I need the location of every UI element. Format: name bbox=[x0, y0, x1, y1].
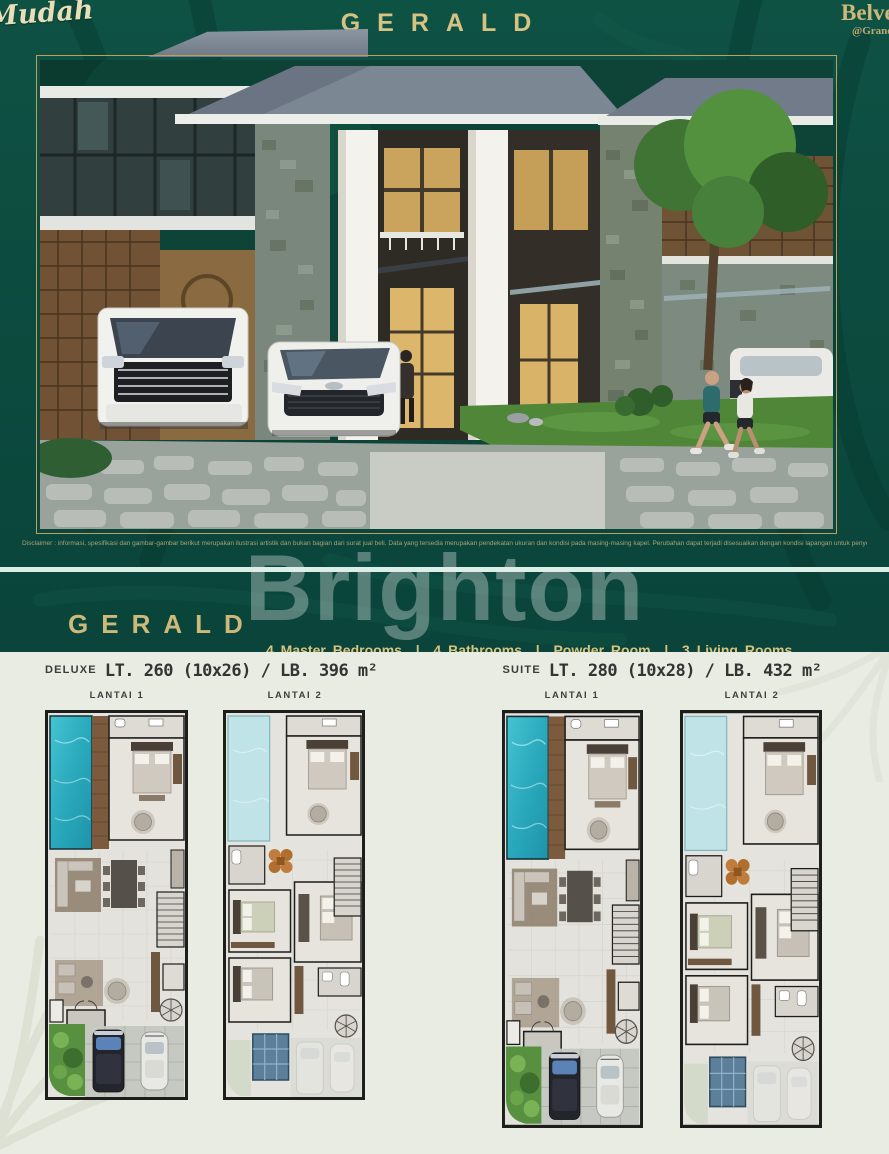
stairs bbox=[612, 905, 639, 964]
deluxe-floor2-label: LANTAI 2 bbox=[255, 690, 335, 701]
suite-floor1-label: LANTAI 1 bbox=[532, 690, 612, 701]
deluxe-floor1-label: LANTAI 1 bbox=[77, 690, 157, 701]
floorplan-suite-lantai-2 bbox=[680, 710, 822, 1128]
bedroom-2 bbox=[287, 736, 361, 835]
bedroom-5 bbox=[229, 958, 291, 1022]
floorplan-section: DELUXELT. 260 (10x26) / LB. 396 m² SUITE… bbox=[0, 652, 889, 1154]
floorplan-suite-lantai-1 bbox=[502, 710, 643, 1128]
house-rendering bbox=[40, 60, 833, 529]
skylight bbox=[253, 1034, 289, 1080]
spiral-stair bbox=[792, 1037, 814, 1061]
mpv-car bbox=[98, 308, 248, 429]
brochure-page: Mudah GERALD Belvedere @Grand bbox=[0, 0, 889, 1154]
stairs bbox=[791, 869, 818, 931]
stairs bbox=[334, 858, 361, 916]
bedroom-2 bbox=[744, 738, 818, 844]
deluxe-label: DELUXE bbox=[45, 664, 97, 676]
bedroom-3 bbox=[686, 903, 748, 969]
brand-subname: @Grand bbox=[852, 25, 889, 37]
page-title: GERALD bbox=[0, 9, 889, 38]
suite-header: SUITELT. 280 (10x28) / LB. 432 m² bbox=[492, 661, 832, 681]
garden bbox=[506, 1047, 541, 1124]
carport-van bbox=[549, 1053, 580, 1119]
bedroom-3 bbox=[229, 890, 291, 952]
suite-spec: LT. 280 (10x28) / LB. 432 m² bbox=[549, 661, 822, 681]
living-dining bbox=[512, 869, 601, 927]
pool-void bbox=[228, 716, 270, 841]
driveway bbox=[40, 438, 833, 529]
suite-label: SUITE bbox=[503, 664, 541, 676]
brand-name: Belvedere bbox=[841, 0, 889, 26]
living-dining bbox=[55, 858, 145, 912]
pool-void bbox=[685, 716, 727, 850]
ghost-carport bbox=[684, 1062, 818, 1125]
pool-deck bbox=[548, 716, 565, 859]
carport bbox=[85, 1026, 184, 1097]
spiral-stair bbox=[335, 1015, 357, 1037]
spiral-stair bbox=[160, 999, 182, 1021]
garden bbox=[49, 1024, 85, 1096]
skylight bbox=[710, 1057, 746, 1106]
pool bbox=[50, 716, 92, 849]
pool bbox=[507, 716, 548, 859]
top-banner: Mudah GERALD Belvedere @Grand bbox=[0, 0, 889, 652]
carport bbox=[541, 1049, 639, 1125]
features-line-1: 4 Master Bedrooms | 4 Bathrooms | Powder… bbox=[266, 641, 825, 652]
floorplan-deluxe-lantai-1 bbox=[45, 710, 188, 1100]
stairs bbox=[157, 892, 184, 947]
floorplan-deluxe-lantai-2 bbox=[223, 710, 365, 1100]
ghost-carport bbox=[227, 1038, 361, 1097]
bedroom-5 bbox=[686, 976, 748, 1045]
suite-floor2-label: LANTAI 2 bbox=[712, 690, 792, 701]
deluxe-header: DELUXELT. 260 (10x26) / LB. 396 m² bbox=[45, 661, 377, 681]
master-bedroom bbox=[109, 738, 184, 840]
spiral-stair bbox=[615, 1020, 637, 1044]
unit-name: GERALD bbox=[68, 609, 256, 640]
carport-car bbox=[597, 1055, 624, 1117]
house-photo-frame bbox=[36, 55, 837, 534]
carport-van bbox=[93, 1030, 124, 1092]
master-bedroom bbox=[565, 740, 639, 849]
deluxe-spec: LT. 260 (10x26) / LB. 396 m² bbox=[105, 661, 378, 681]
hatchback-car bbox=[268, 342, 400, 436]
carport-car bbox=[141, 1032, 168, 1090]
pool-deck bbox=[92, 716, 109, 849]
